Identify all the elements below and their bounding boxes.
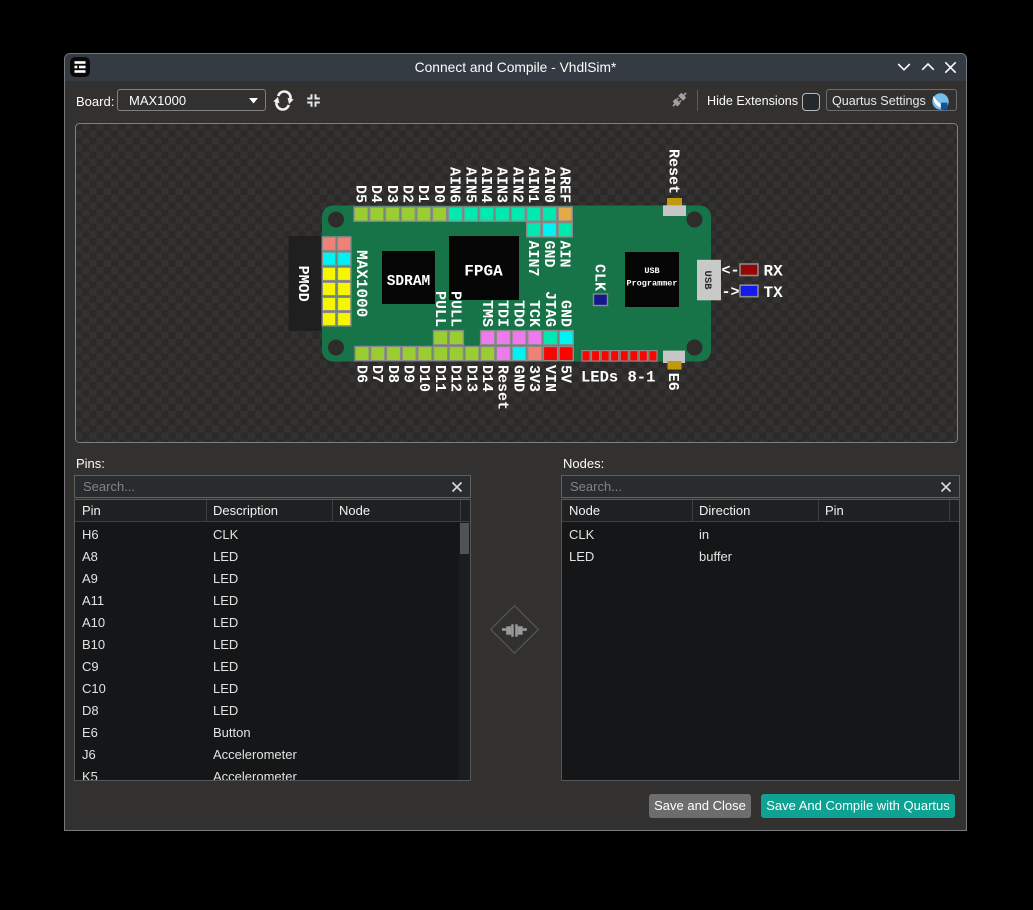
svg-text:MAX1000: MAX1000 [352, 250, 370, 317]
svg-text:AIN3: AIN3 [493, 167, 510, 203]
svg-text:USB: USB [701, 271, 713, 291]
svg-text:E6: E6 [664, 373, 681, 391]
svg-text:AIN2: AIN2 [508, 167, 525, 203]
svg-text:Programmer: Programmer [626, 279, 677, 289]
svg-text:D7: D7 [368, 365, 385, 383]
svg-text:D9: D9 [400, 365, 417, 383]
svg-text:Reset: Reset [494, 365, 511, 410]
svg-text:AIN0: AIN0 [540, 167, 557, 203]
svg-text:AIN5: AIN5 [461, 167, 478, 203]
svg-text:RX: RX [764, 263, 784, 281]
svg-text:D14: D14 [478, 365, 495, 392]
svg-text:D13: D13 [462, 365, 479, 392]
svg-text:VIN: VIN [541, 365, 558, 392]
svg-text:PULL: PULL [431, 291, 448, 327]
svg-text:AIN7: AIN7 [524, 241, 541, 277]
svg-text:D4: D4 [367, 185, 384, 203]
svg-text:AIN4: AIN4 [477, 167, 494, 203]
svg-text:<-: <- [722, 263, 740, 280]
svg-text:PMOD: PMOD [294, 266, 311, 302]
svg-text:AIN1: AIN1 [524, 167, 541, 203]
svg-text:PULL: PULL [447, 291, 464, 327]
svg-text:USB: USB [644, 266, 659, 276]
svg-text:D2: D2 [399, 185, 416, 203]
svg-text:AIN6: AIN6 [446, 167, 463, 203]
svg-text:LEDs 8-1: LEDs 8-1 [581, 369, 655, 387]
svg-text:TDI: TDI [494, 300, 511, 327]
svg-text:SDRAM: SDRAM [387, 274, 431, 290]
svg-text:D1: D1 [414, 185, 431, 203]
svg-text:D5: D5 [351, 185, 368, 203]
svg-text:D6: D6 [352, 365, 369, 383]
svg-text:JTAG: JTAG [541, 291, 558, 327]
svg-text:TX: TX [764, 284, 784, 302]
svg-text:->: -> [722, 284, 740, 301]
svg-text:FPGA: FPGA [464, 263, 503, 281]
svg-text:D0: D0 [430, 185, 447, 203]
svg-text:D12: D12 [447, 365, 464, 392]
svg-text:3V3: 3V3 [525, 365, 542, 392]
svg-text:D3: D3 [383, 185, 400, 203]
svg-text:TDO: TDO [509, 300, 526, 327]
svg-text:D10: D10 [415, 365, 432, 392]
svg-text:GND: GND [509, 365, 526, 392]
svg-text:CLK: CLK [590, 264, 607, 291]
svg-text:D8: D8 [384, 365, 401, 383]
svg-text:D11: D11 [431, 365, 448, 392]
svg-text:AIN: AIN [556, 241, 573, 268]
svg-text:AREF: AREF [556, 167, 573, 203]
svg-text:TCK: TCK [525, 300, 542, 327]
svg-text:TMS: TMS [478, 300, 495, 327]
svg-text:GND: GND [540, 241, 557, 268]
svg-text:Reset: Reset [664, 149, 681, 194]
svg-text:GND: GND [557, 300, 574, 327]
svg-text:5V: 5V [557, 365, 574, 383]
